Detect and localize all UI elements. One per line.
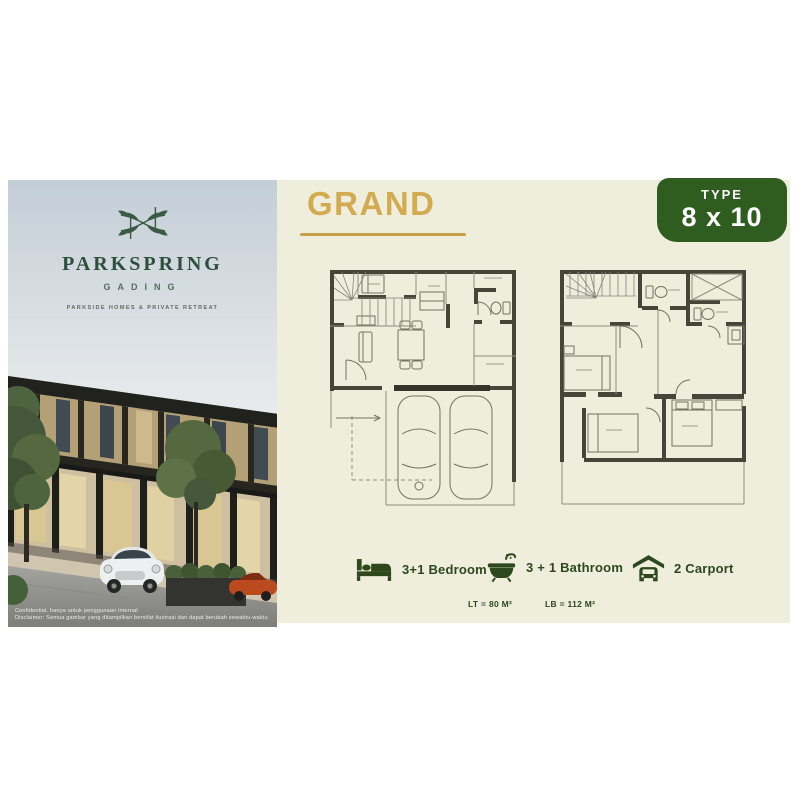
amenity-bedroom-label: 3+1 Bedroom xyxy=(402,562,487,577)
disclaimer-line-1: Confidential, hanya untuk penggunaan int… xyxy=(15,608,270,615)
floorplan-panel: GRAND TYPE 8 x 10 xyxy=(277,180,790,623)
upper-floor-plan xyxy=(558,268,748,508)
page-title: GRAND xyxy=(307,185,436,223)
brand-logo-block: PARKSPRING GADING PARKSIDE HOMES & PRIVA… xyxy=(8,200,277,311)
brand-tagline: PARKSIDE HOMES & PRIVATE RETREAT xyxy=(8,305,277,311)
ground-floor-plan xyxy=(328,268,518,508)
building-area-label: LB = 112 M² xyxy=(545,599,595,609)
parkspring-logo-icon xyxy=(116,200,170,246)
photo-disclaimer: Confidential, hanya untuk penggunaan int… xyxy=(15,608,270,622)
brochure-page: PARKSPRING GADING PARKSIDE HOMES & PRIVA… xyxy=(0,0,804,804)
amenity-bathroom-label: 3 + 1 Bathroom xyxy=(526,560,623,575)
bathtub-icon xyxy=(486,551,517,583)
type-badge-label: TYPE xyxy=(657,187,787,202)
amenity-carport: 2 Carport xyxy=(632,554,734,582)
amenity-carport-label: 2 Carport xyxy=(674,561,734,576)
brand-subname: GADING xyxy=(8,282,277,292)
hero-photo-card: PARKSPRING GADING PARKSIDE HOMES & PRIVA… xyxy=(8,180,277,627)
title-underline xyxy=(300,233,466,236)
carport-icon xyxy=(632,554,665,582)
disclaimer-line-2: Disclaimer: Semua gambar yang ditampilka… xyxy=(15,615,270,622)
bed-icon xyxy=(355,556,393,583)
type-badge-value: 8 x 10 xyxy=(657,202,787,233)
land-area-label: LT = 80 M² xyxy=(468,599,512,609)
amenity-bedroom: 3+1 Bedroom xyxy=(355,556,487,583)
amenity-bathroom: 3 + 1 Bathroom xyxy=(486,551,623,583)
brand-name: PARKSPRING xyxy=(8,253,277,276)
type-badge: TYPE 8 x 10 xyxy=(657,178,787,242)
